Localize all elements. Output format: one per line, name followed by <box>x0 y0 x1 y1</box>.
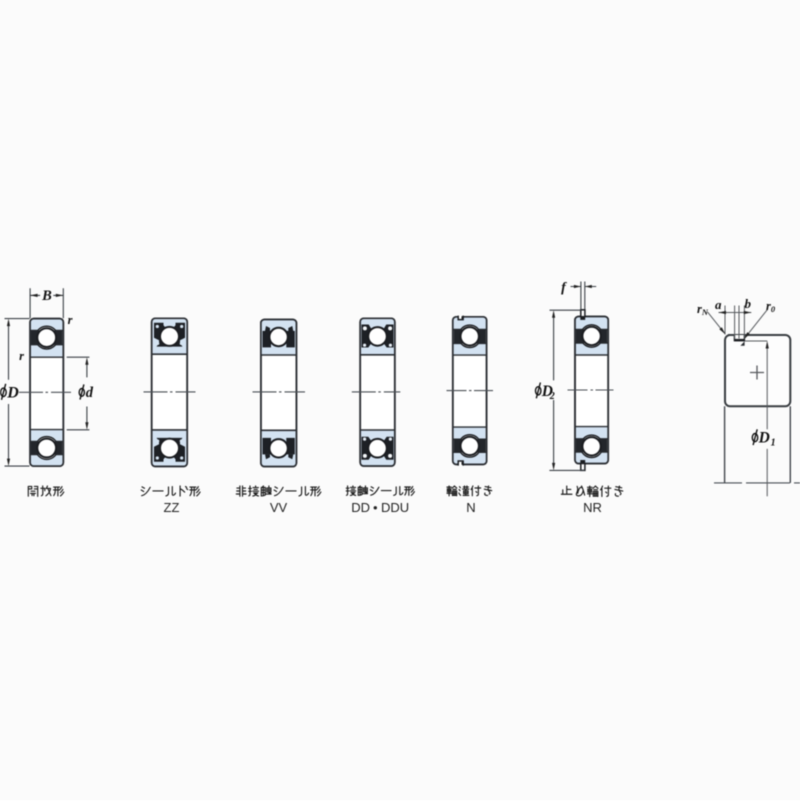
svg-text:1: 1 <box>771 438 776 449</box>
svg-text:D: D <box>758 430 770 447</box>
svg-text:a: a <box>715 297 722 312</box>
svg-text:ZZ: ZZ <box>164 500 180 515</box>
svg-text:r: r <box>19 349 24 363</box>
svg-text:b: b <box>745 296 752 311</box>
svg-text:N: N <box>466 500 475 515</box>
svg-text:B: B <box>41 288 52 304</box>
svg-text:D: D <box>6 385 19 402</box>
svg-text:2: 2 <box>549 391 555 402</box>
svg-text:NR: NR <box>583 500 602 515</box>
svg-text:d: d <box>86 385 94 401</box>
svg-text:DD: DD <box>351 500 370 515</box>
svg-text:r: r <box>68 313 73 327</box>
svg-text:DDU: DDU <box>381 500 409 515</box>
svg-text:VV: VV <box>270 500 288 515</box>
